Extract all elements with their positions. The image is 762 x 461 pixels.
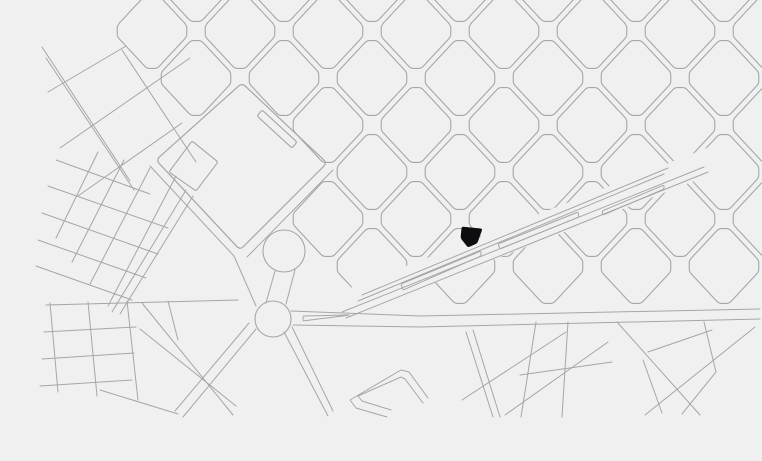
map-background [0,0,762,461]
map-svg [0,0,762,461]
site-location-map [0,0,762,461]
